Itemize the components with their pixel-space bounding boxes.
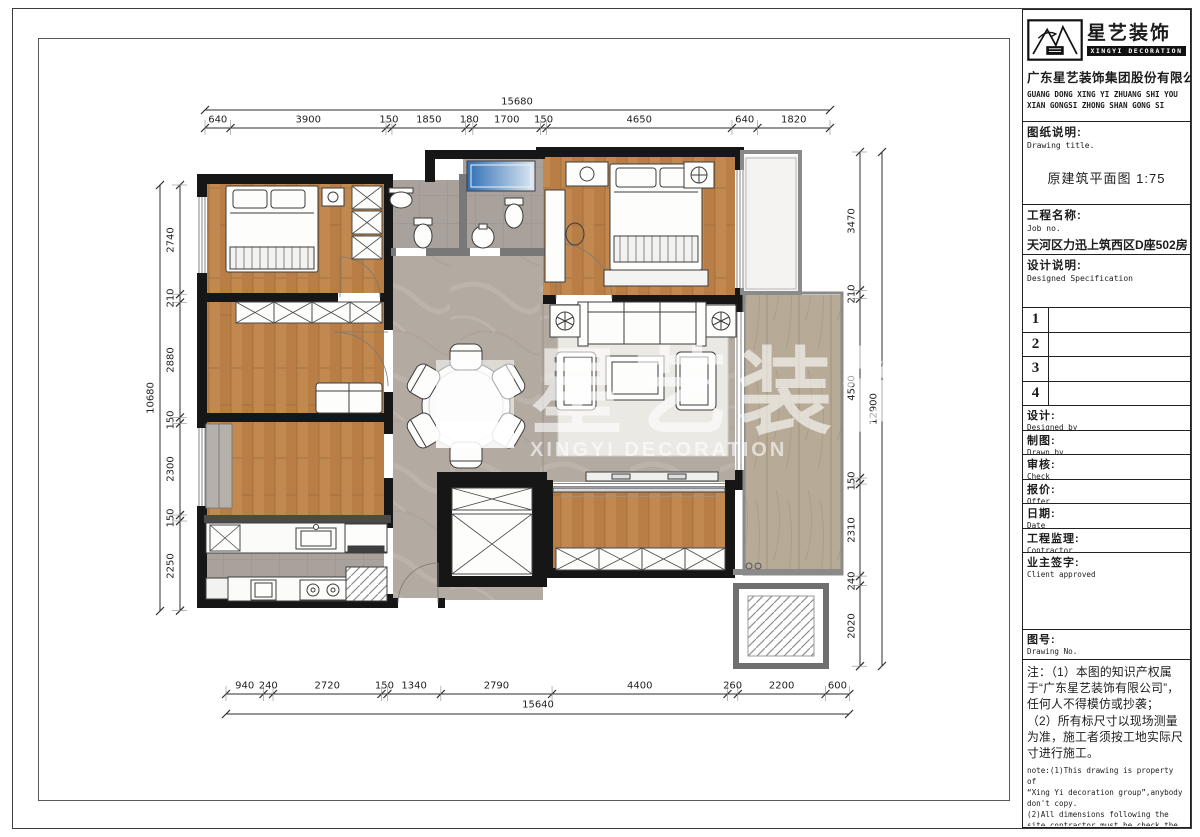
design-spec-label-cn: 设计说明: [1027, 257, 1186, 273]
field-contractor: 工程监理: Contractor [1023, 529, 1190, 554]
field-date: 日期: Date [1023, 504, 1190, 529]
drawing-sheet: 6403900150185018017001504650640182094024… [0, 0, 1200, 837]
drawing-title-label-en: Drawing title. [1027, 141, 1186, 150]
drawing-title-value: 原建筑平面图 1:75 [1027, 168, 1186, 187]
bedroom-low-furniture [206, 424, 232, 508]
design-spec-label-en: Designed Specification [1027, 274, 1186, 283]
field-designed-by: 设计: Designed by [1023, 406, 1190, 431]
revision-table: 1 2 3 4 [1023, 308, 1190, 406]
revision-row: 3 [1023, 357, 1190, 382]
field-check: 审核: Check [1023, 455, 1190, 480]
stone-balcony-floor [744, 295, 841, 573]
revision-number: 2 [1023, 333, 1049, 357]
notes-section: 注：（1）本图的知识产权属 于“广东星艺装饰有限公司”， 任何人不得模仿或抄袭；… [1023, 660, 1190, 826]
job-section: 工程名称: Job no. 天河区力迅上筑西区D座502房 [1023, 205, 1190, 255]
revision-row: 1 [1023, 308, 1190, 333]
company-name-cn: 广东星艺装饰集团股份有限公司 [1027, 67, 1186, 86]
revision-number: 1 [1023, 308, 1049, 332]
field-drawing-no: 图号: Drawing No. [1023, 630, 1190, 660]
company-logo-icon [1027, 18, 1083, 62]
job-label-cn: 工程名称: [1027, 207, 1186, 223]
bedroom-mid-furniture [316, 383, 382, 413]
drawing-title-label-cn: 图纸说明: [1027, 124, 1186, 140]
brand-name-cn: 星艺装饰 [1087, 24, 1186, 45]
floor-plan [0, 0, 1200, 837]
terrace-hatch [748, 596, 814, 656]
living-room-set [550, 302, 736, 481]
note-en: note:(1)This drawing is property of “Xin… [1027, 765, 1186, 826]
drawing-title-section: 图纸说明: Drawing title. 原建筑平面图 1:75 [1023, 122, 1190, 205]
job-value: 天河区力迅上筑西区D座502房 [1027, 236, 1186, 253]
top-balcony-floor [744, 156, 798, 291]
design-spec-section: 设计说明: Designed Specification [1023, 255, 1190, 308]
revision-number: 3 [1023, 357, 1049, 381]
revision-row: 4 [1023, 382, 1190, 407]
revision-row: 2 [1023, 333, 1190, 358]
revision-number: 4 [1023, 382, 1049, 406]
brand-name-en: XINGYI DECORATION [1087, 46, 1186, 56]
field-drawn-by: 制图: Drawn by [1023, 431, 1190, 456]
company-name-en: GUANG DONG XING YI ZHUANG SHI YOU XIAN G… [1027, 89, 1186, 111]
job-label-en: Job no. [1027, 224, 1186, 233]
note-cn: 注：（1）本图的知识产权属 于“广东星艺装饰有限公司”， 任何人不得模仿或抄袭；… [1027, 664, 1186, 761]
company-header: 星艺装饰 XINGYI DECORATION 广东星艺装饰集团股份有限公司 GU… [1023, 10, 1190, 122]
field-client-signature: 业主签字: Client approved [1023, 553, 1190, 630]
title-block: 星艺装饰 XINGYI DECORATION 广东星艺装饰集团股份有限公司 GU… [1022, 9, 1191, 828]
field-offer: 报价: Offer [1023, 480, 1190, 505]
